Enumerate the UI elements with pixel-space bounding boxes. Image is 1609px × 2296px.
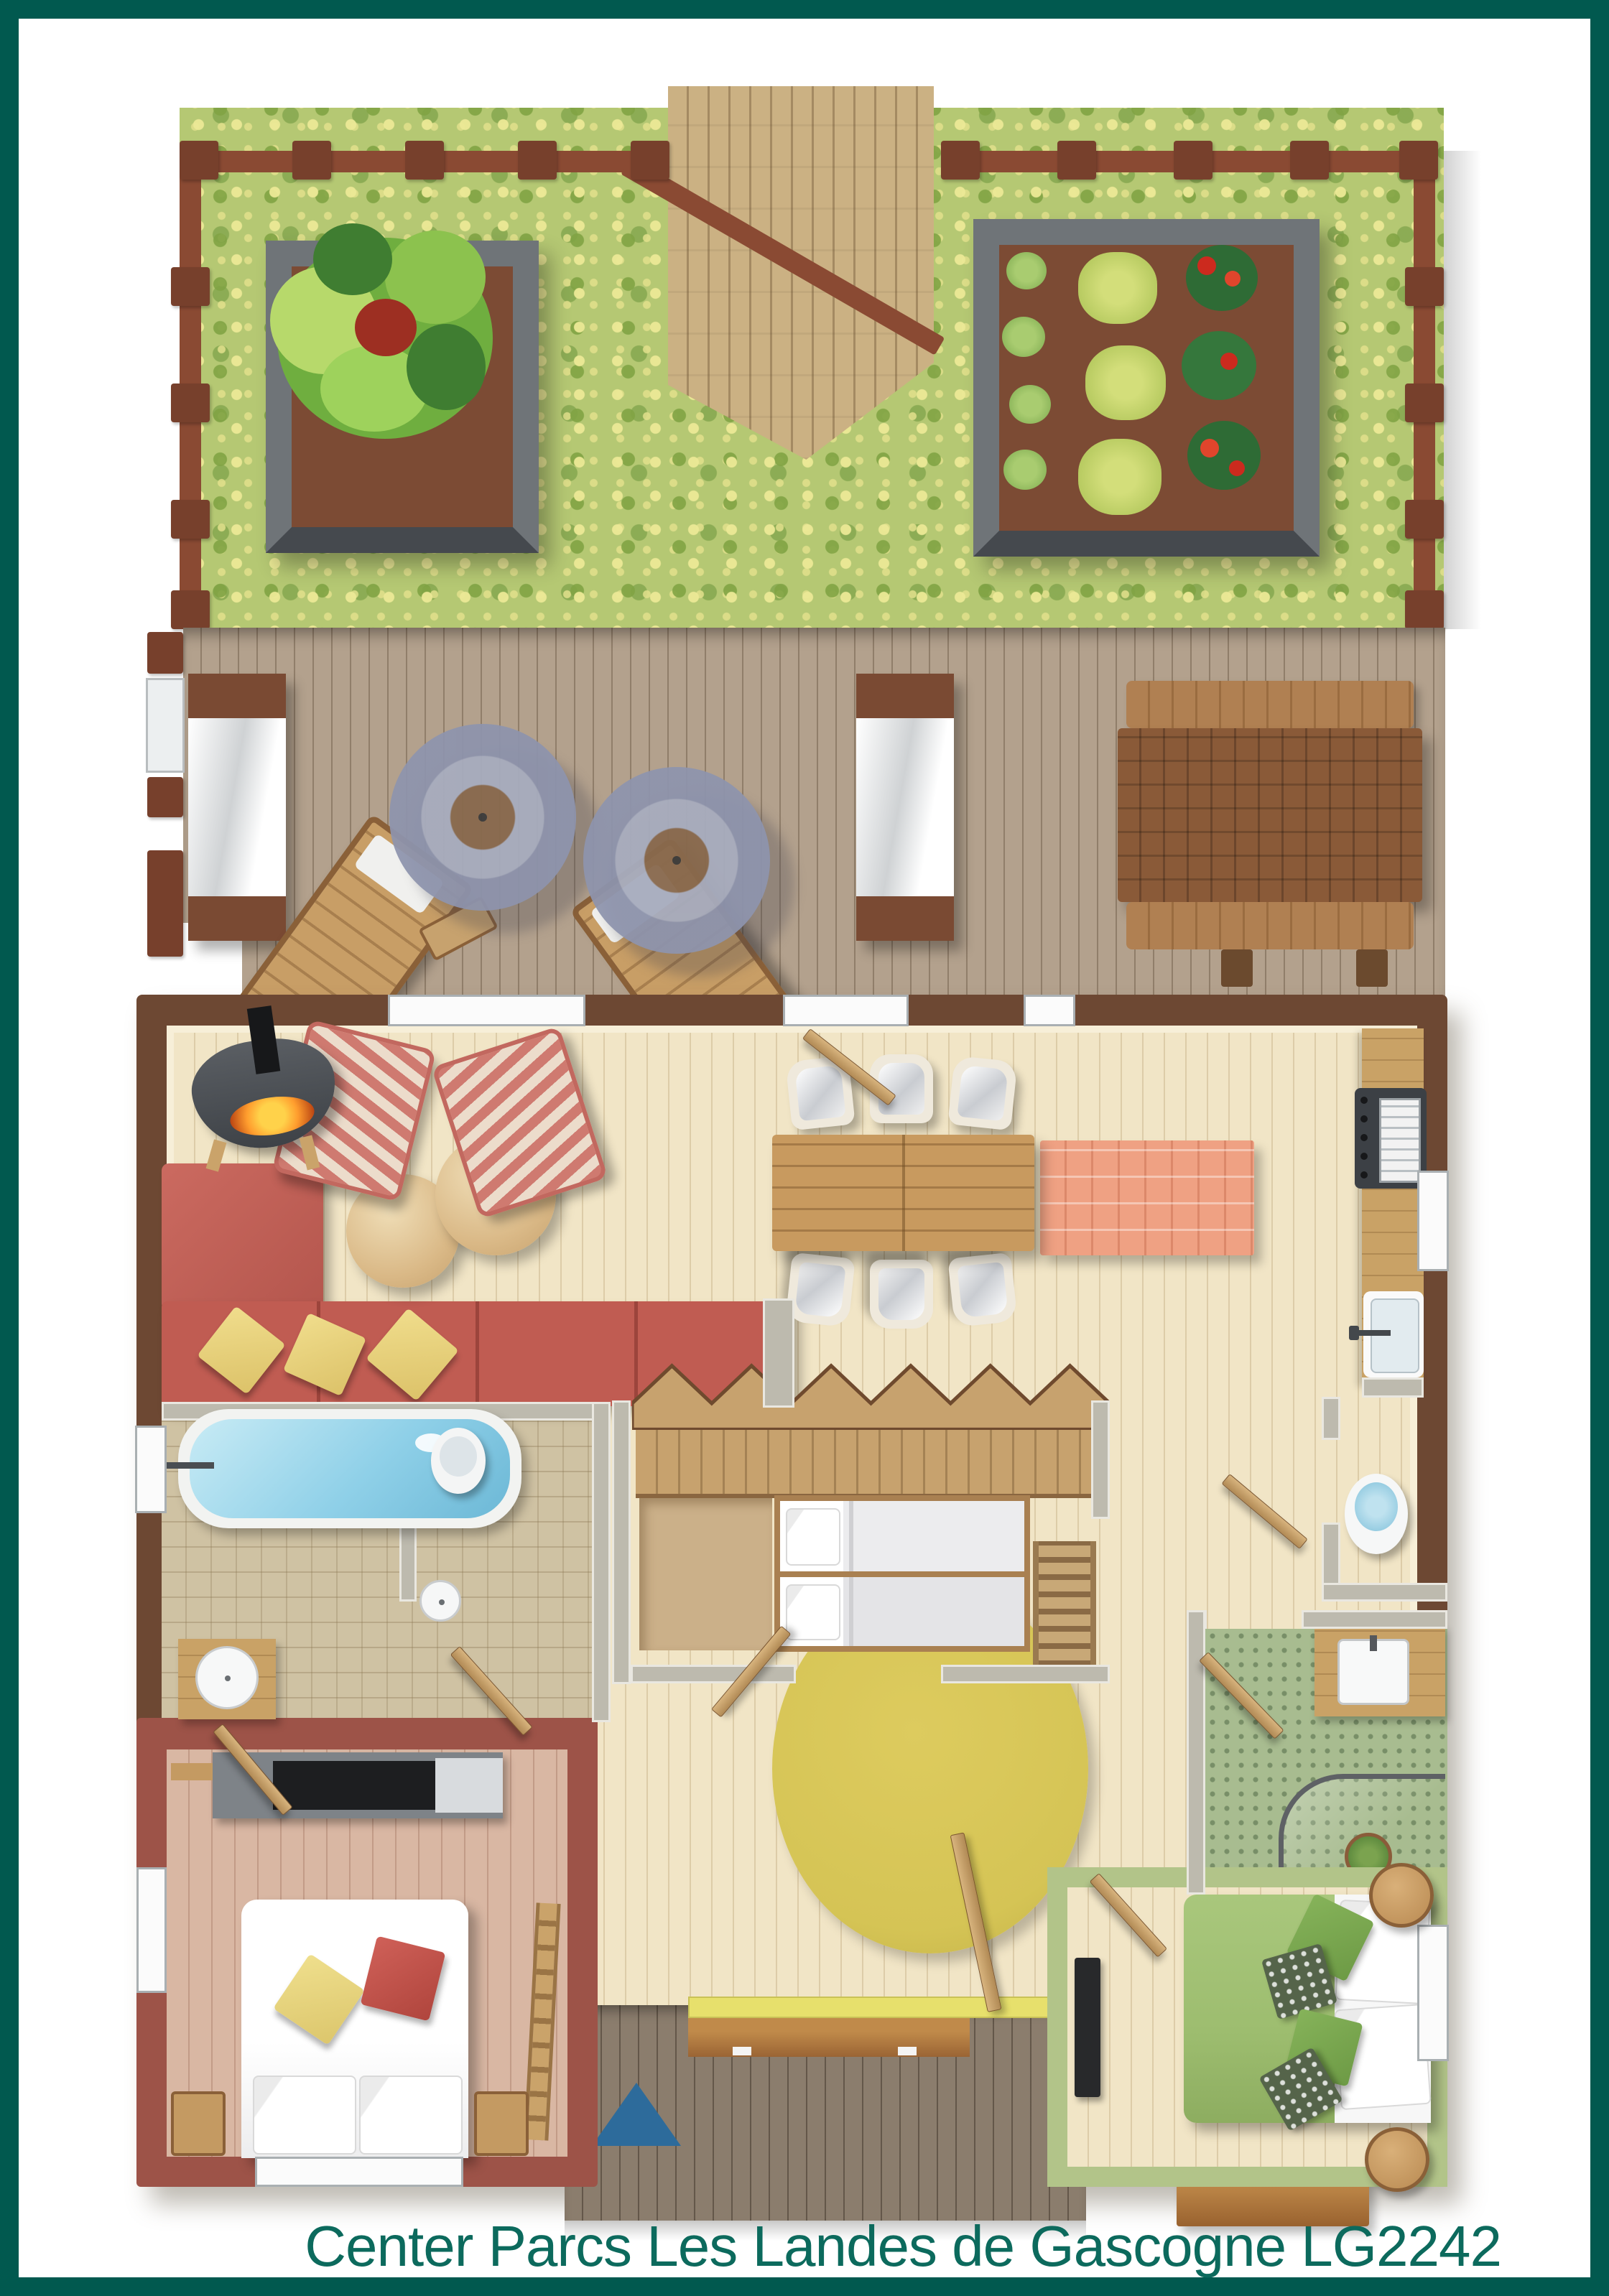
vegetable-plants-feathery	[1002, 252, 1067, 511]
fence-post	[405, 141, 444, 180]
garden-shadow	[1444, 151, 1481, 629]
bedside-stool	[1365, 2127, 1429, 2192]
nightstand	[171, 2091, 226, 2156]
fence-post	[180, 141, 218, 180]
picnic-table-leg	[1356, 949, 1388, 987]
fence-post	[292, 141, 331, 180]
dining-table	[772, 1135, 1034, 1251]
oven-grill	[1379, 1098, 1421, 1183]
bunk-bed-1	[780, 1501, 1024, 1571]
deck-post	[147, 632, 183, 674]
wc-wall-left-upper	[1322, 1397, 1340, 1440]
deck-bench-white	[146, 678, 185, 773]
bathroom-2-sink	[1337, 1639, 1409, 1705]
nightstand	[474, 2091, 529, 2156]
floor-plan-page: Center Parcs Les Landes de Gascogne LG22…	[0, 0, 1609, 2296]
dining-chair	[870, 1260, 933, 1329]
fence-post	[941, 141, 980, 180]
zigzag-wardrobe	[632, 1360, 1110, 1430]
deck-post	[147, 850, 183, 957]
window-bottom-bedroom-left	[255, 2157, 463, 2187]
fence-post	[1405, 267, 1444, 306]
bush	[270, 223, 507, 453]
wc-wall-bottom	[1322, 1583, 1447, 1602]
picnic-bench-bottom	[1126, 902, 1414, 949]
fence-post	[1057, 141, 1096, 180]
kitchen-sink	[1363, 1291, 1424, 1377]
bathtub-faucet	[162, 1462, 214, 1469]
tomato-plants	[1179, 245, 1272, 525]
fence-post	[171, 267, 210, 306]
sofa-corner-section	[162, 1163, 323, 1311]
window-top-2	[783, 995, 909, 1026]
parasol-left	[389, 724, 576, 911]
deck-post	[147, 777, 183, 817]
bunk-ladder	[1033, 1541, 1096, 1678]
bedroom-left-wardrobe	[213, 1752, 503, 1818]
bedroom-left-shelf	[171, 1763, 213, 1780]
planter-bed-left	[266, 241, 539, 553]
small-toilet	[431, 1428, 486, 1494]
window-left-bathroom	[135, 1426, 167, 1513]
vegetable-plants-leafy	[1078, 245, 1164, 518]
privacy-screen-left	[188, 674, 286, 941]
kitchen-cooktop	[1355, 1088, 1427, 1189]
parasol-right	[583, 767, 770, 954]
bathroom-2-wall-left	[1187, 1610, 1205, 1895]
dining-chair	[785, 1252, 855, 1328]
bed-pillow	[253, 2076, 356, 2155]
plan-caption: Center Parcs Les Landes de Gascogne LG22…	[305, 2213, 1501, 2279]
dining-chair	[947, 1056, 1018, 1131]
dining-chair	[947, 1252, 1018, 1328]
kids-room-wall-left	[612, 1400, 631, 1684]
kids-alcove	[639, 1498, 772, 1650]
window-left-bedroom	[136, 1867, 167, 1993]
kitchen-end-wall	[1362, 1377, 1424, 1398]
wall-basin	[419, 1580, 461, 1622]
bathroom-2-wall-top-b	[1302, 1610, 1447, 1629]
toilet	[1345, 1474, 1408, 1554]
bathroom-1-wall-right	[592, 1402, 611, 1722]
fence-post	[1174, 141, 1212, 180]
bunk-platform	[636, 1426, 1106, 1498]
fence-post	[518, 141, 557, 180]
bunk-beds-frame	[774, 1495, 1030, 1652]
fence-post	[1405, 384, 1444, 422]
fence-post	[171, 590, 210, 629]
picnic-table	[1118, 728, 1422, 902]
entrance-step	[688, 2018, 970, 2057]
window-top-terrace-door	[388, 995, 585, 1026]
kids-room-wall-right	[1091, 1400, 1110, 1519]
window-top-3	[1024, 995, 1075, 1026]
tv-panel	[1075, 1958, 1100, 2097]
window-right-bedroom	[1417, 1925, 1449, 2061]
wood-stove	[188, 1020, 343, 1153]
fence-post	[1399, 141, 1438, 180]
kids-room-wall-bottom-b	[941, 1665, 1110, 1683]
sofa-end-wall	[763, 1298, 794, 1408]
kids-room-wall-bottom-a	[631, 1665, 796, 1683]
dining-rug	[1040, 1140, 1254, 1255]
bunk-bed-2	[780, 1577, 1024, 1646]
privacy-screen-right	[856, 674, 954, 941]
picnic-bench-top	[1126, 681, 1414, 728]
picnic-table-leg	[1221, 949, 1253, 987]
bed-pillow	[359, 2076, 463, 2155]
fence-post	[171, 500, 210, 539]
planter-bed-right	[973, 219, 1320, 557]
fence-post	[631, 141, 669, 180]
fence-post	[1290, 141, 1329, 180]
vanity-round-sink	[195, 1646, 259, 1709]
fence-post	[1405, 590, 1444, 629]
fence-post	[171, 384, 210, 422]
fence-post	[1405, 500, 1444, 539]
bedside-stool	[1369, 1863, 1434, 1928]
window-right-kitchen	[1417, 1171, 1449, 1271]
entrance-threshold	[688, 1997, 1086, 2018]
door-mat-triangle	[592, 2083, 681, 2146]
